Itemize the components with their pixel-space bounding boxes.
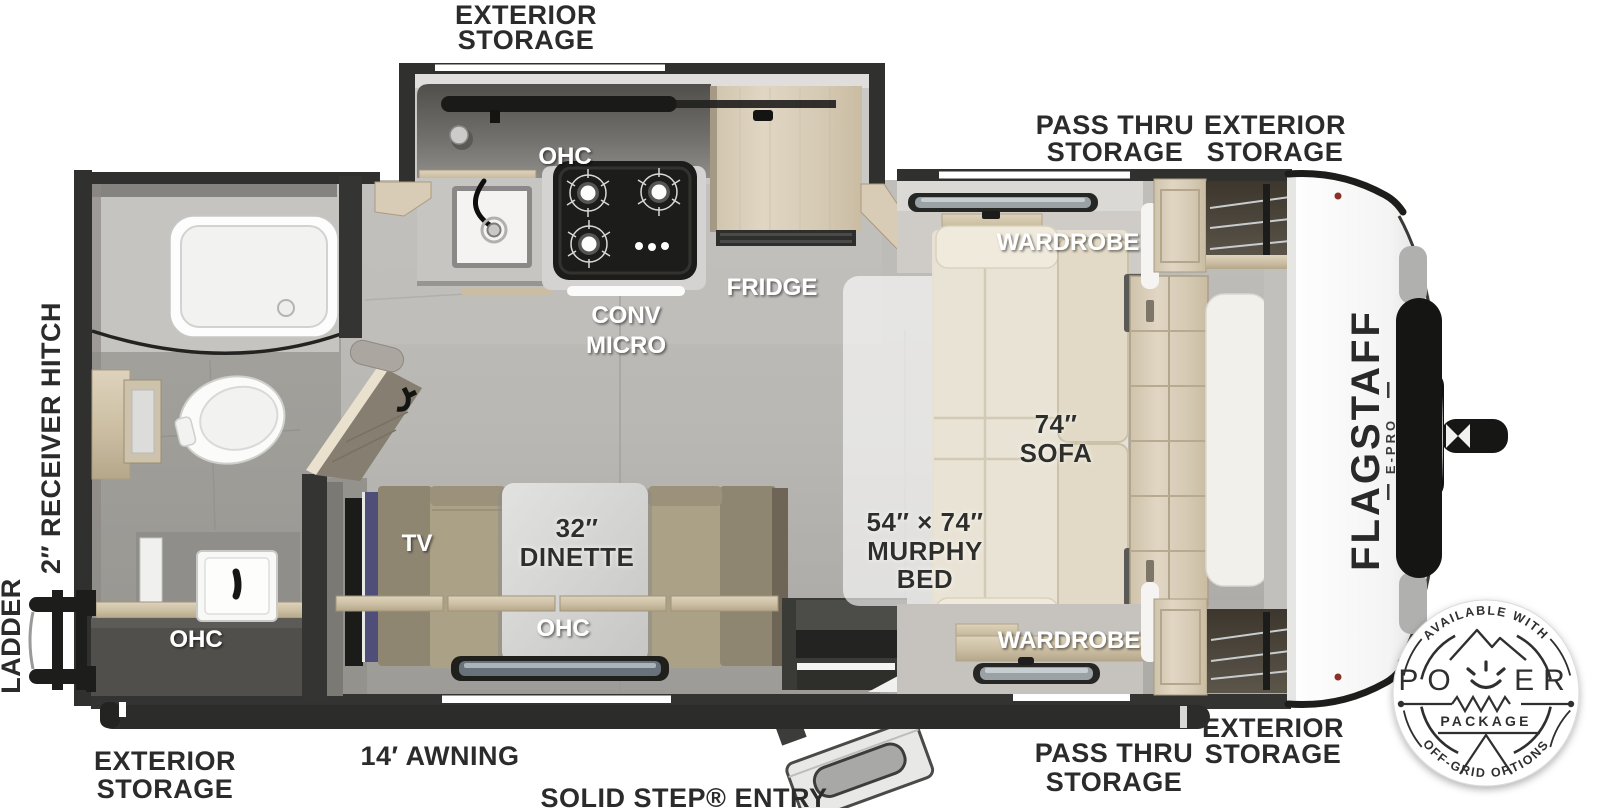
svg-text:74″: 74″ xyxy=(1035,409,1078,439)
svg-text:ER: ER xyxy=(1514,664,1574,697)
svg-text:OHC: OHC xyxy=(538,143,591,170)
svg-text:PACKAGE: PACKAGE xyxy=(1440,713,1531,729)
svg-text:STORAGE: STORAGE xyxy=(1205,739,1342,769)
svg-text:SOLID STEP® ENTRY: SOLID STEP® ENTRY xyxy=(541,783,828,808)
svg-text:PASS THRU: PASS THRU xyxy=(1036,110,1195,140)
svg-text:STORAGE: STORAGE xyxy=(458,25,595,55)
svg-text:FLAGSTAFF: FLAGSTAFF xyxy=(1344,309,1388,571)
svg-text:EXTERIOR: EXTERIOR xyxy=(1204,110,1346,140)
svg-text:OHC: OHC xyxy=(536,615,589,642)
svg-text:OHC: OHC xyxy=(169,626,222,653)
svg-text:PO: PO xyxy=(1398,664,1459,697)
svg-text:STORAGE: STORAGE xyxy=(97,774,234,804)
svg-text:54″ × 74″: 54″ × 74″ xyxy=(867,507,984,537)
svg-text:STORAGE: STORAGE xyxy=(1207,137,1344,167)
svg-text:MURPHY: MURPHY xyxy=(867,536,983,566)
svg-text:STORAGE: STORAGE xyxy=(1046,767,1183,797)
svg-text:TV: TV xyxy=(402,530,433,557)
svg-text:LADDER: LADDER xyxy=(0,578,26,694)
svg-text:32″: 32″ xyxy=(556,513,599,543)
svg-text:MICRO: MICRO xyxy=(586,332,666,359)
svg-text:2″ RECEIVER HITCH: 2″ RECEIVER HITCH xyxy=(36,302,66,574)
svg-text:DINETTE: DINETTE xyxy=(520,542,635,572)
svg-text:STORAGE: STORAGE xyxy=(1047,137,1184,167)
svg-text:PASS THRU: PASS THRU xyxy=(1035,738,1194,768)
svg-text:E-PRO: E-PRO xyxy=(1383,418,1398,474)
svg-text:EXTERIOR: EXTERIOR xyxy=(94,746,236,776)
svg-text:WARDROBE: WARDROBE xyxy=(998,627,1141,654)
svg-text:WARDROBE: WARDROBE xyxy=(997,229,1140,256)
svg-text:14′ AWNING: 14′ AWNING xyxy=(361,741,520,771)
svg-text:SOFA: SOFA xyxy=(1020,438,1093,468)
svg-text:FRIDGE: FRIDGE xyxy=(727,274,818,301)
svg-text:CONV: CONV xyxy=(591,302,660,329)
svg-text:BED: BED xyxy=(897,564,953,594)
